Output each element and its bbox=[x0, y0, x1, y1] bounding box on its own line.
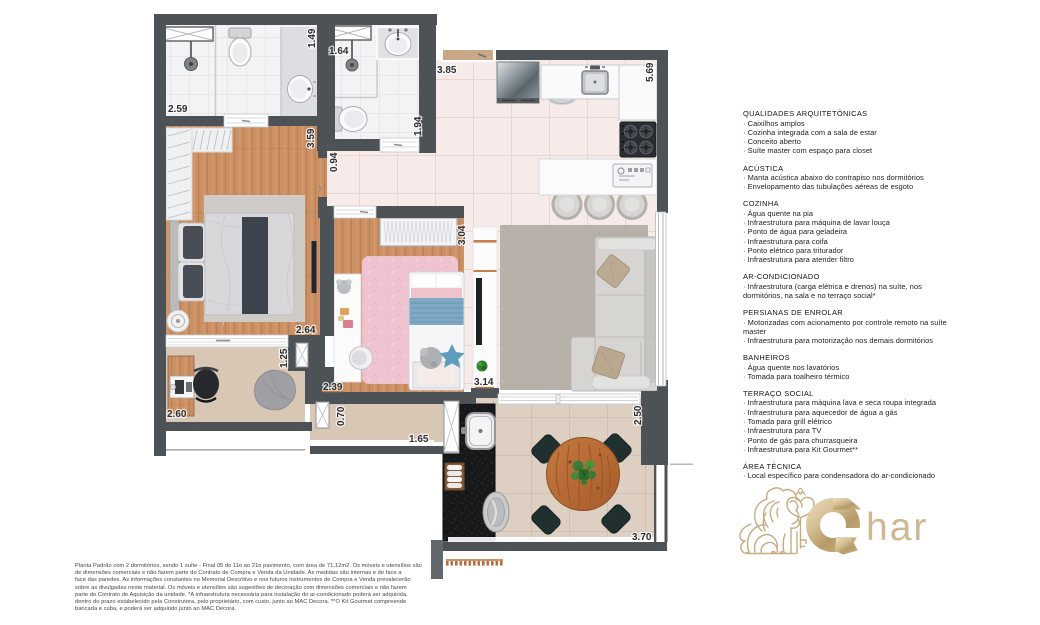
svg-text:2.60: 2.60 bbox=[167, 409, 187, 420]
svg-text:3.59: 3.59 bbox=[306, 128, 317, 148]
svg-text:3.04: 3.04 bbox=[457, 225, 468, 245]
svg-text:5.69: 5.69 bbox=[645, 62, 656, 82]
svg-text:1.94: 1.94 bbox=[413, 116, 424, 136]
svg-text:1.25: 1.25 bbox=[279, 348, 290, 368]
svg-text:1.65: 1.65 bbox=[409, 434, 429, 445]
svg-text:2.59: 2.59 bbox=[168, 104, 188, 115]
svg-text:2.64: 2.64 bbox=[296, 325, 316, 336]
svg-text:3.14: 3.14 bbox=[474, 377, 494, 388]
svg-text:har: har bbox=[866, 506, 928, 549]
svg-text:0.94: 0.94 bbox=[329, 152, 340, 172]
svg-text:1.64: 1.64 bbox=[329, 46, 349, 57]
svg-text:3.85: 3.85 bbox=[437, 65, 457, 76]
svg-text:1.49: 1.49 bbox=[307, 28, 318, 48]
svg-text:2.50: 2.50 bbox=[633, 405, 644, 425]
svg-text:0.70: 0.70 bbox=[336, 406, 347, 426]
svg-text:3.70: 3.70 bbox=[632, 532, 652, 543]
